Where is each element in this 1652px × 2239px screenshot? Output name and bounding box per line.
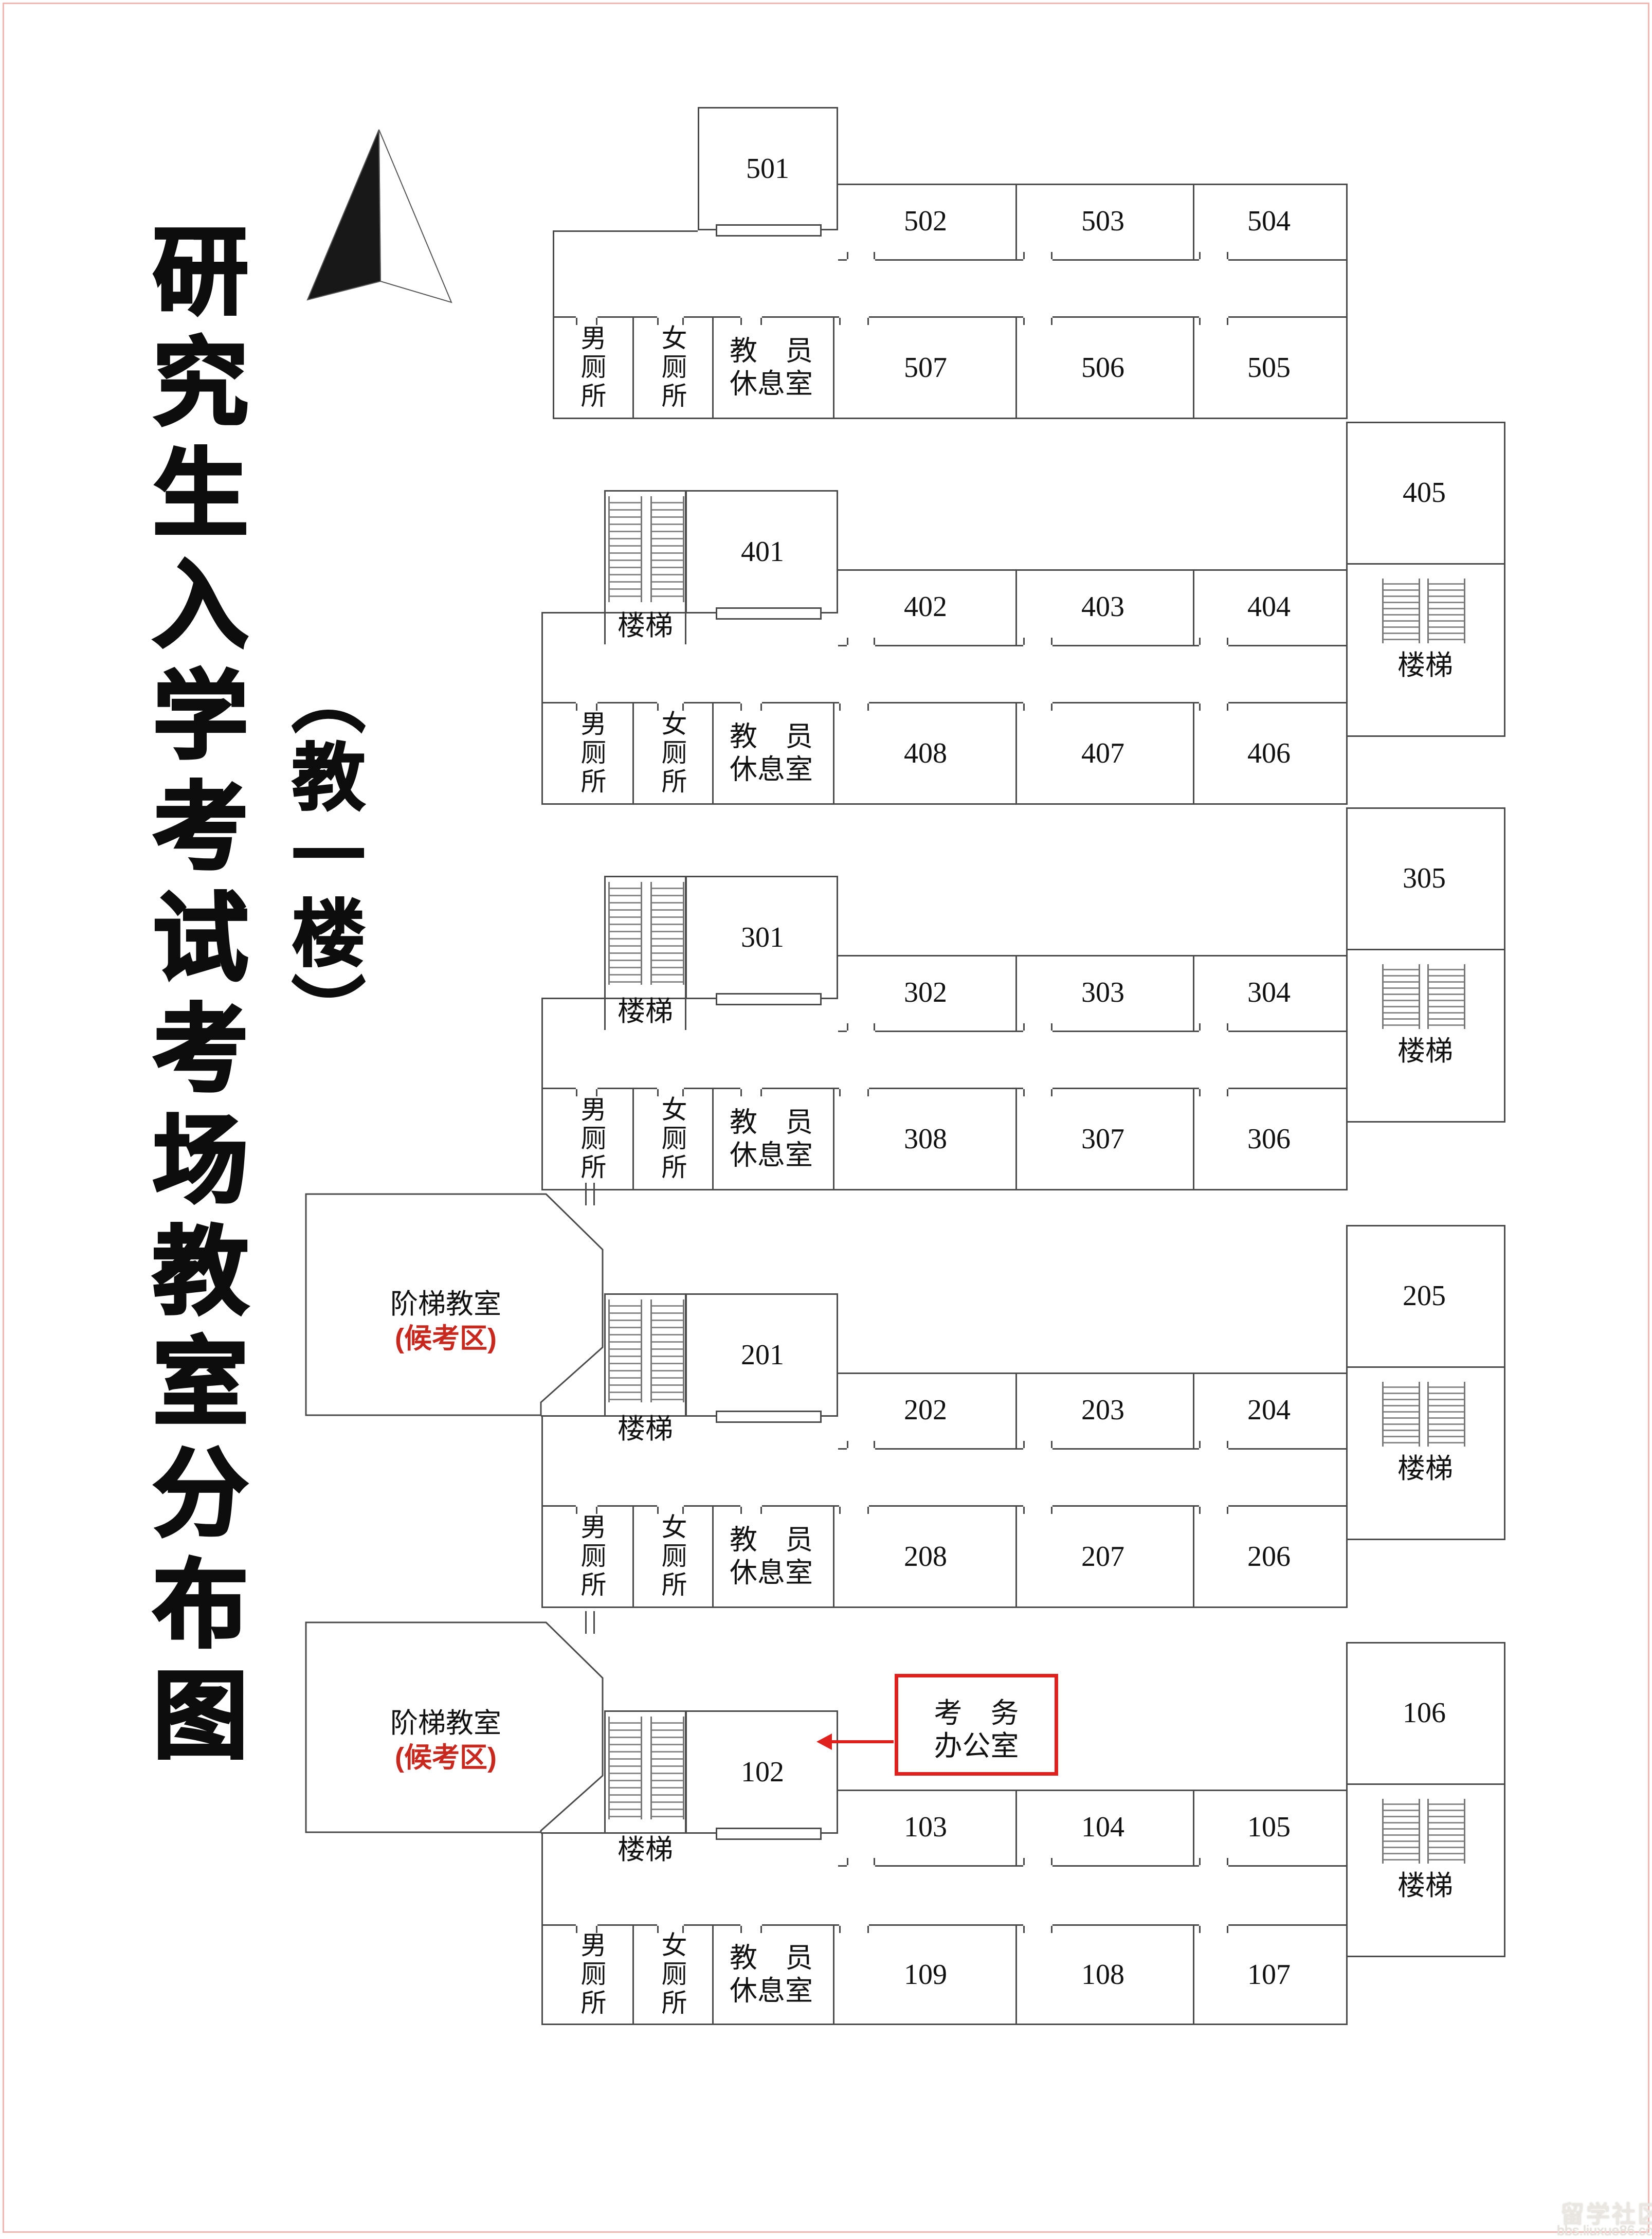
door-stub (1199, 1926, 1201, 1933)
wall (541, 2024, 1348, 2025)
exam-office-callout: 考 务 办公室 (895, 1674, 1058, 1776)
wall (597, 1924, 657, 1926)
lounge-line1: 教 员 (730, 1942, 813, 1973)
stairs-label: 楼梯 (618, 1834, 673, 1867)
callout-arrow (830, 1740, 894, 1743)
wall (1052, 1924, 1199, 1926)
lecture-hall-label: 阶梯教室 (390, 1707, 501, 1740)
watermark-site-url: bbs.liuxue86.com (1557, 2223, 1652, 2239)
stairs-hatch (608, 1717, 642, 1819)
door-stub (874, 1858, 875, 1865)
door-stub (1051, 1858, 1052, 1865)
women-toilet-label: 女厕所 (658, 1931, 686, 2018)
room-number: 103 (904, 1813, 947, 1841)
wall (838, 1790, 1348, 1791)
door-stub (1051, 1926, 1052, 1933)
waiting-area-label: (候考区) (395, 1742, 497, 1775)
wall (685, 1710, 687, 1834)
room-number: 102 (741, 1758, 784, 1786)
wall (1228, 1924, 1346, 1926)
door-stub (593, 1611, 595, 1634)
door-stub (1023, 1858, 1025, 1865)
door-stub (839, 1926, 841, 1933)
room-number: 104 (1081, 1813, 1124, 1841)
wall (712, 1924, 714, 2025)
stairs-label: 楼梯 (1397, 1870, 1453, 1903)
door-stub (760, 1926, 762, 1933)
wall (1052, 1865, 1199, 1867)
wall (833, 1924, 834, 2025)
room-number: 108 (1081, 1960, 1124, 1989)
door-stub (740, 1926, 742, 1933)
door-stub (1199, 1858, 1201, 1865)
wall (541, 1924, 576, 1926)
room-number: 109 (904, 1960, 947, 1989)
exam-office-line2: 办公室 (934, 1732, 1019, 1760)
side-stair-block (1346, 1642, 1505, 1957)
door-stub (847, 1858, 848, 1865)
wall (1193, 1790, 1194, 1865)
door-symbol (716, 1828, 822, 1840)
room-number: 107 (1247, 1960, 1291, 1989)
wall (541, 1832, 543, 2025)
door-stub (1023, 1926, 1025, 1933)
room-number: 105 (1247, 1813, 1291, 1841)
lounge-line2: 休息室 (730, 1975, 813, 2006)
door-stub (585, 1611, 587, 1634)
door-stub (1227, 1926, 1228, 1933)
room-number: 106 (1403, 1699, 1446, 1727)
wall (1193, 1924, 1194, 2025)
wall (1346, 1783, 1505, 1785)
floor-plan-page: { "page": {"border_color": "#f3b7b3", "b… (0, 0, 1652, 2235)
wall (838, 1865, 847, 1867)
wall (762, 1924, 839, 1926)
wall (541, 1832, 604, 1834)
wall (1015, 1924, 1017, 2025)
wall (1015, 1790, 1017, 1865)
callout-arrowhead (816, 1734, 832, 1750)
men-toilet-label: 男厕所 (577, 1931, 606, 2018)
wall (632, 1924, 634, 2025)
stairs-hatch (650, 1717, 684, 1819)
wall (869, 1924, 1023, 1926)
lounge-label: 教 员休息室 (730, 1942, 813, 2007)
stairs-hatch (1382, 1799, 1420, 1864)
wall (875, 1865, 1023, 1867)
stairs-hatch (1427, 1799, 1465, 1864)
wall (1228, 1865, 1346, 1867)
exam-office-line1: 考 务 (934, 1699, 1019, 1727)
door-stub (1227, 1858, 1228, 1865)
door-stub (867, 1926, 869, 1933)
